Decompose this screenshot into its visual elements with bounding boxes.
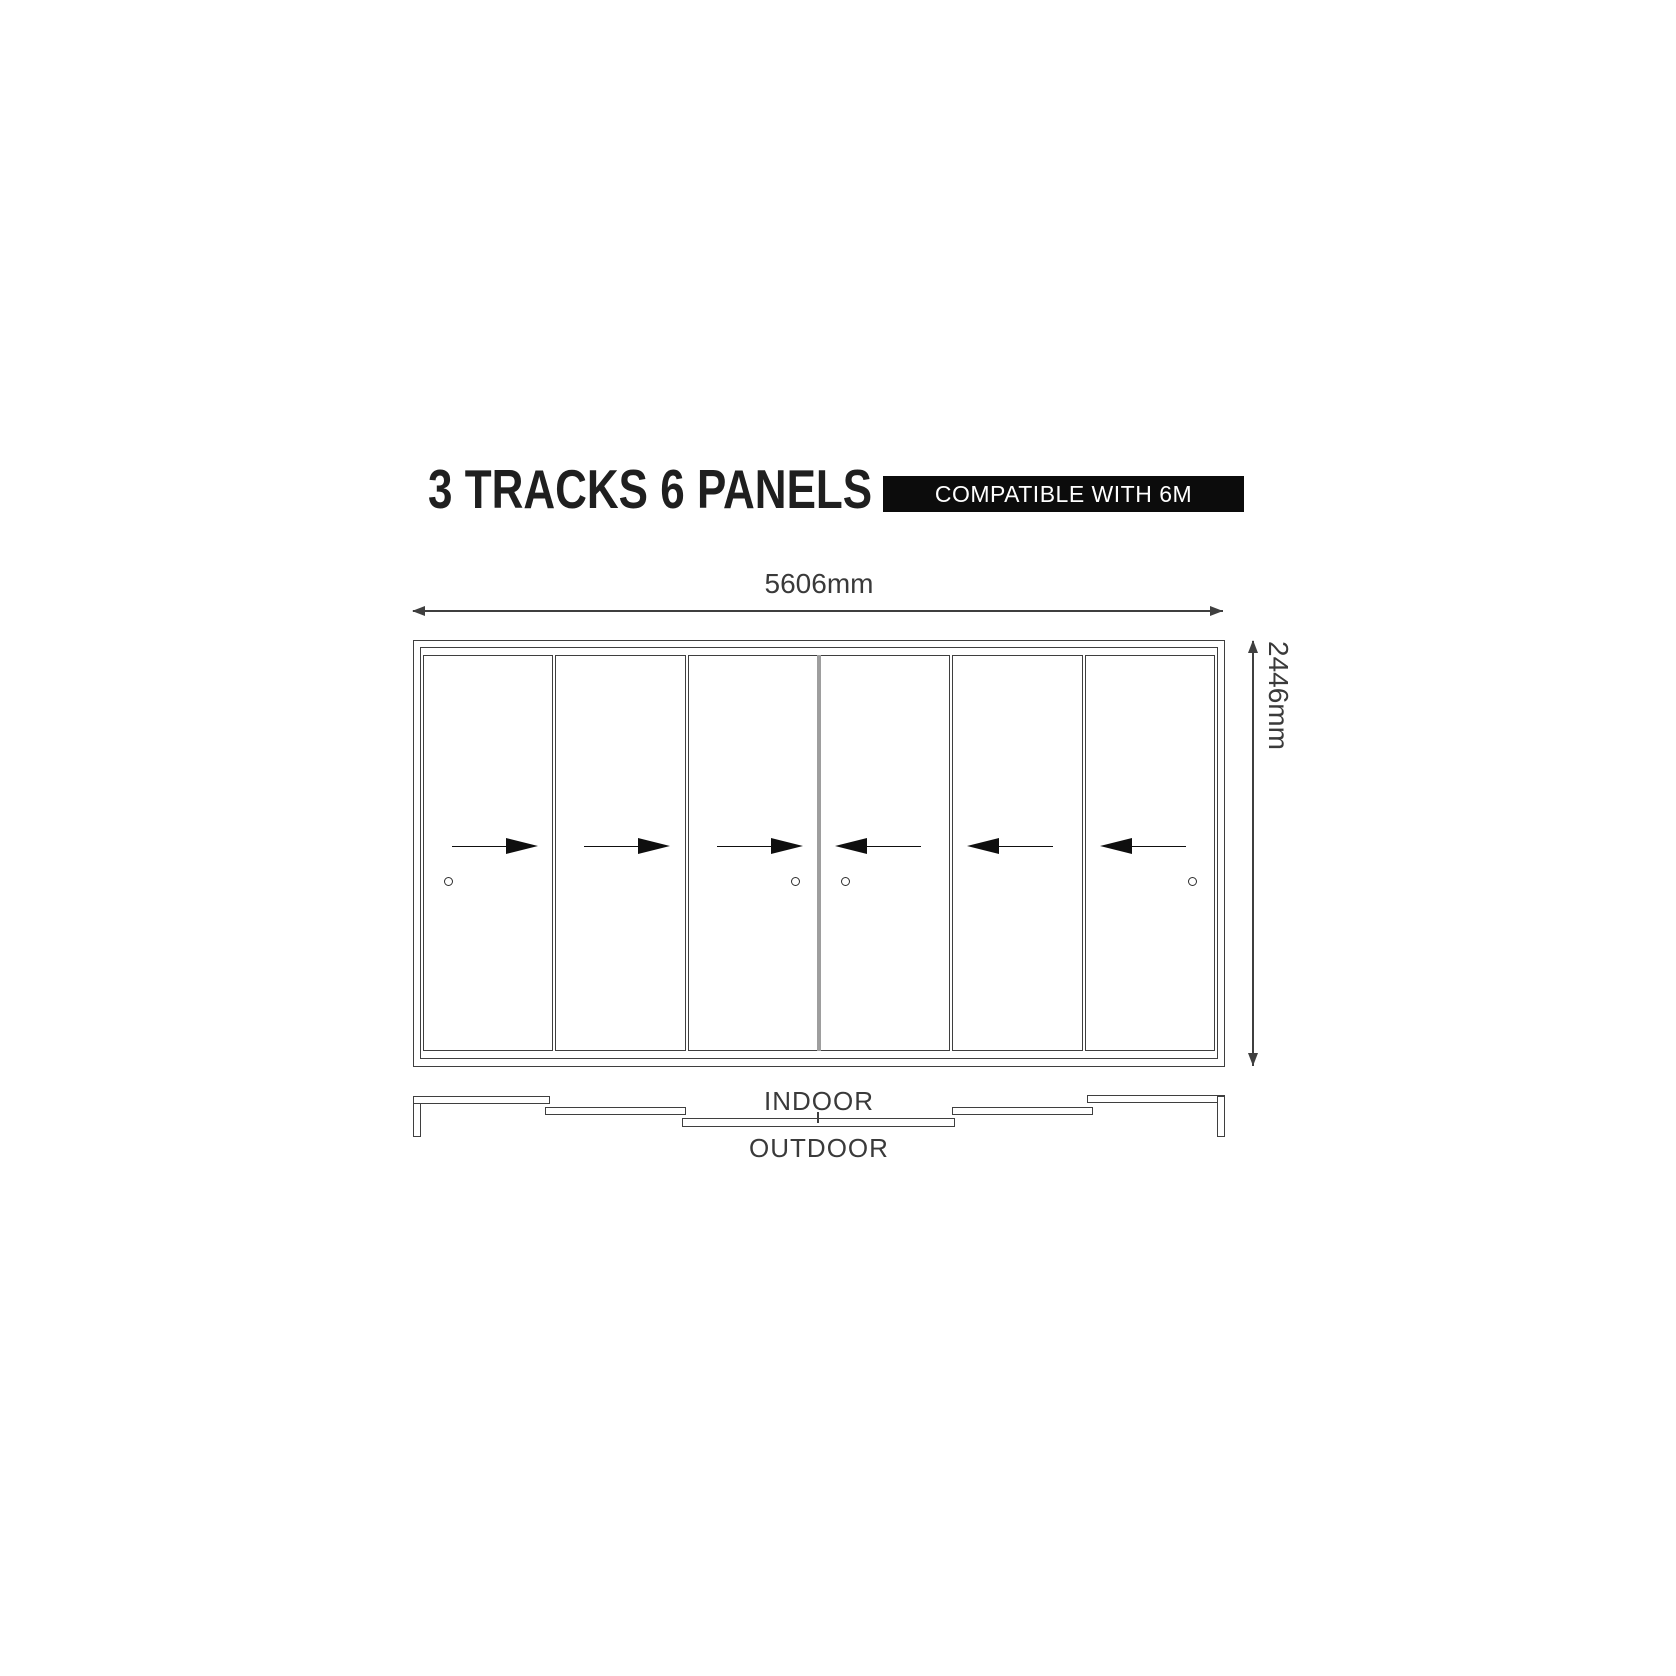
height-dimension-label: 2446mm [1262,641,1294,1066]
width-dimension-line [413,610,1223,612]
arrowhead-left-icon [412,606,425,616]
height-dimension-line [1252,641,1254,1066]
handle-icon [791,877,800,886]
arrowhead-up-icon [1248,640,1258,653]
center-meeting-divider [817,655,821,1051]
arrow-head [835,838,867,854]
slide-direction-left-arrow-icon [953,838,1081,854]
arrow-shaft [584,846,638,847]
door-panel-6 [1085,655,1215,1051]
arrowhead-right-icon [1210,606,1223,616]
door-panel-5 [952,655,1082,1051]
arrow-shaft [999,846,1053,847]
width-dimension-label: 5606mm [413,568,1225,600]
slide-direction-right-arrow-icon [424,838,552,854]
panel-row [423,655,1215,1051]
arrow-shaft [717,846,771,847]
arrow-head [771,838,803,854]
arrowhead-down-icon [1248,1053,1258,1066]
slide-direction-right-arrow-icon [689,838,817,854]
plan-track3-center-panels [682,1118,955,1127]
door-panel-3 [688,655,818,1051]
handle-icon [1188,877,1197,886]
slide-direction-right-arrow-icon [556,838,684,854]
arrow-head [1100,838,1132,854]
handle-icon [444,877,453,886]
arrow-head [967,838,999,854]
indoor-label: INDOOR [413,1086,1225,1117]
page-title: 3 TRACKS 6 PANELS [428,462,872,517]
arrow-shaft [452,846,506,847]
arrow-shaft [1132,846,1186,847]
diagram-canvas: { "header": { "title": "3 TRACKS 6 PANEL… [0,0,1676,1676]
door-panel-1 [423,655,553,1051]
handle-icon [841,877,850,886]
arrow-head [506,838,538,854]
arrow-head [638,838,670,854]
slide-direction-left-arrow-icon [1086,838,1214,854]
slide-direction-left-arrow-icon [821,838,949,854]
arrow-shaft [867,846,921,847]
compatibility-badge: COMPATIBLE WITH 6M [883,476,1244,512]
door-panel-4 [820,655,950,1051]
outdoor-label: OUTDOOR [413,1133,1225,1164]
door-panel-2 [555,655,685,1051]
